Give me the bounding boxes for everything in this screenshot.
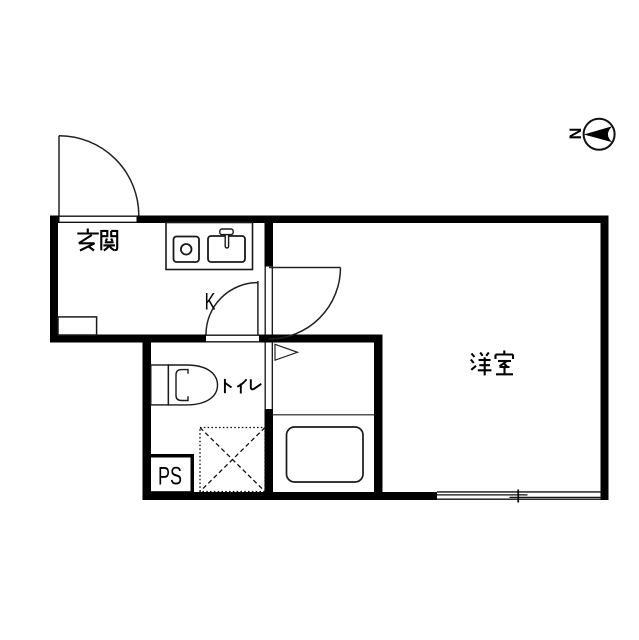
svg-text:K: K [205, 289, 216, 316]
svg-text:PS: PS [158, 463, 182, 491]
svg-text:N: N [567, 128, 585, 140]
